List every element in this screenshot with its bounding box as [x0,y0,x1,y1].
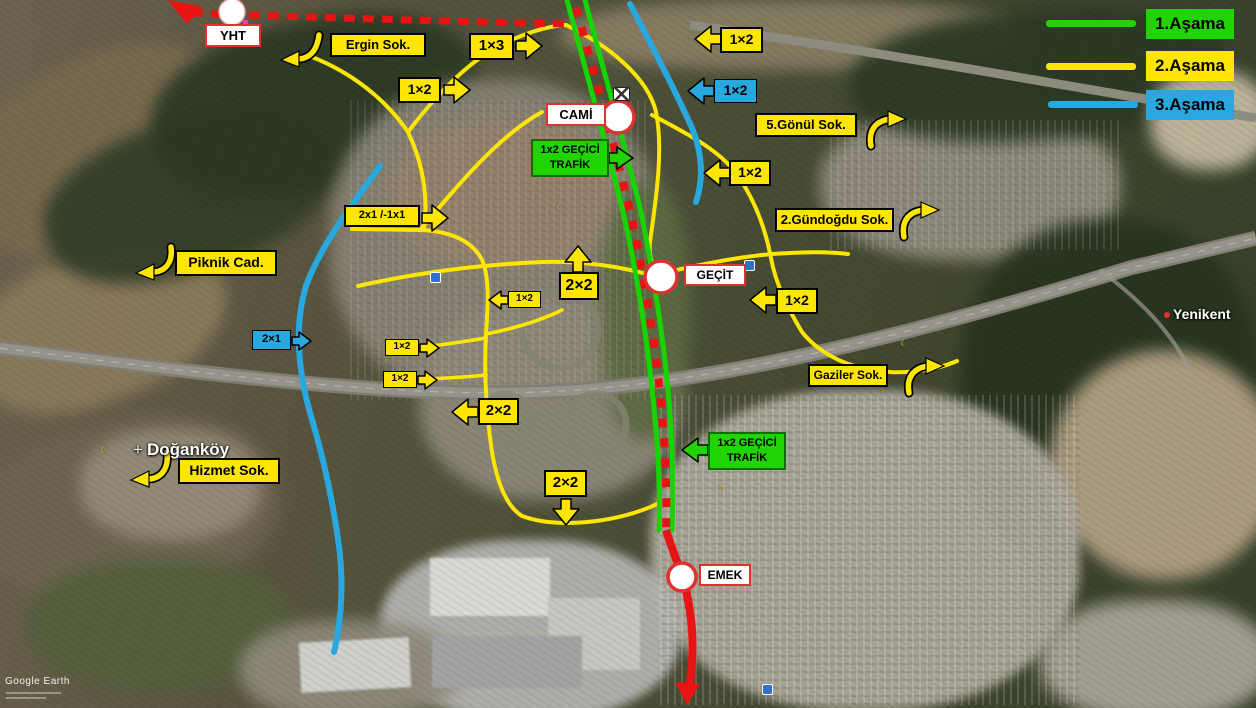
place-name-text: Doğanköy [147,440,229,459]
mosque-icon: ☾ [900,338,908,349]
temp-traffic-label: 1x2 GEÇİCİ TRAFİK [531,139,609,177]
watermark-fineprint [6,697,46,699]
lane-label-1x2: 1×2 [729,160,771,186]
mosque-icon: ☾ [718,484,726,495]
lane-label-2x2: 2×2 [559,272,599,300]
lane-label-2x2: 2×2 [544,470,587,497]
railroad-crossing-icon [613,87,630,101]
station-label-cami: CAMİ [546,103,606,126]
station-label-yht: YHT [205,24,261,47]
place-name-text: Yenikent [1173,306,1231,322]
road-label-hizmet-sok: Hizmet Sok. [178,458,280,484]
watermark-fineprint [6,692,61,694]
legend-swatch-phase2 [1046,63,1136,70]
satellite-map-canvas: Ergin Sok. 1×3 1×2 1×2 1×2 5.Gönül Sok. … [0,0,1256,708]
lane-label-1x3: 1×3 [469,33,514,60]
temp-traffic-label: 1x2 GEÇİCİ TRAFİK [708,432,786,470]
legend-item-phase2: 2.Aşama [1146,51,1234,81]
place-name-dogankoy: +Doğanköy [133,440,229,460]
transit-icon [762,684,773,695]
road-label-gundogdu-sok: 2.Gündoğdu Sok. [775,208,894,232]
lane-label-1x2: 1×2 [398,77,441,103]
lane-label-2x1-blue: 2×1 [252,330,291,350]
road-label-piknik-cad: Piknik Cad. [175,250,277,276]
lane-label-1x2: 1×2 [720,27,763,53]
legend-item-phase3: 3.Aşama [1146,90,1234,120]
lane-label-1x2: 1×2 [776,288,818,314]
google-earth-watermark: Google Earth [5,676,70,687]
mosque-icon: ☾ [100,445,108,456]
station-label-emek: EMEK [699,564,751,586]
legend-item-phase1: 1.Aşama [1146,9,1234,39]
lane-label-1x2-small: 1×2 [383,371,417,388]
legend-swatch-phase1 [1046,20,1136,27]
lane-label-1x2-small: 1×2 [385,339,419,356]
lane-label-2x2: 2×2 [478,398,519,425]
place-name-yenikent: Yenikent [1164,306,1231,322]
place-marker-icon: + [133,440,143,460]
lane-label-1x2-blue: 1×2 [714,79,757,103]
road-label-ergin-sok: Ergin Sok. [330,33,426,57]
lane-label-2x1-1x1: 2x1 /-1x1 [344,205,420,227]
transit-icon [430,272,441,283]
road-label-gonul-sok: 5.Gönül Sok. [755,113,857,137]
place-pin-icon [1164,312,1170,318]
road-label-gaziler-sok: Gaziler Sok. [808,364,888,387]
legend-swatch-phase3 [1048,101,1138,108]
station-label-gecit: GEÇİT [684,264,746,286]
lane-label-1x2-small: 1×2 [508,291,541,308]
mosque-icon: ☾ [556,202,564,213]
